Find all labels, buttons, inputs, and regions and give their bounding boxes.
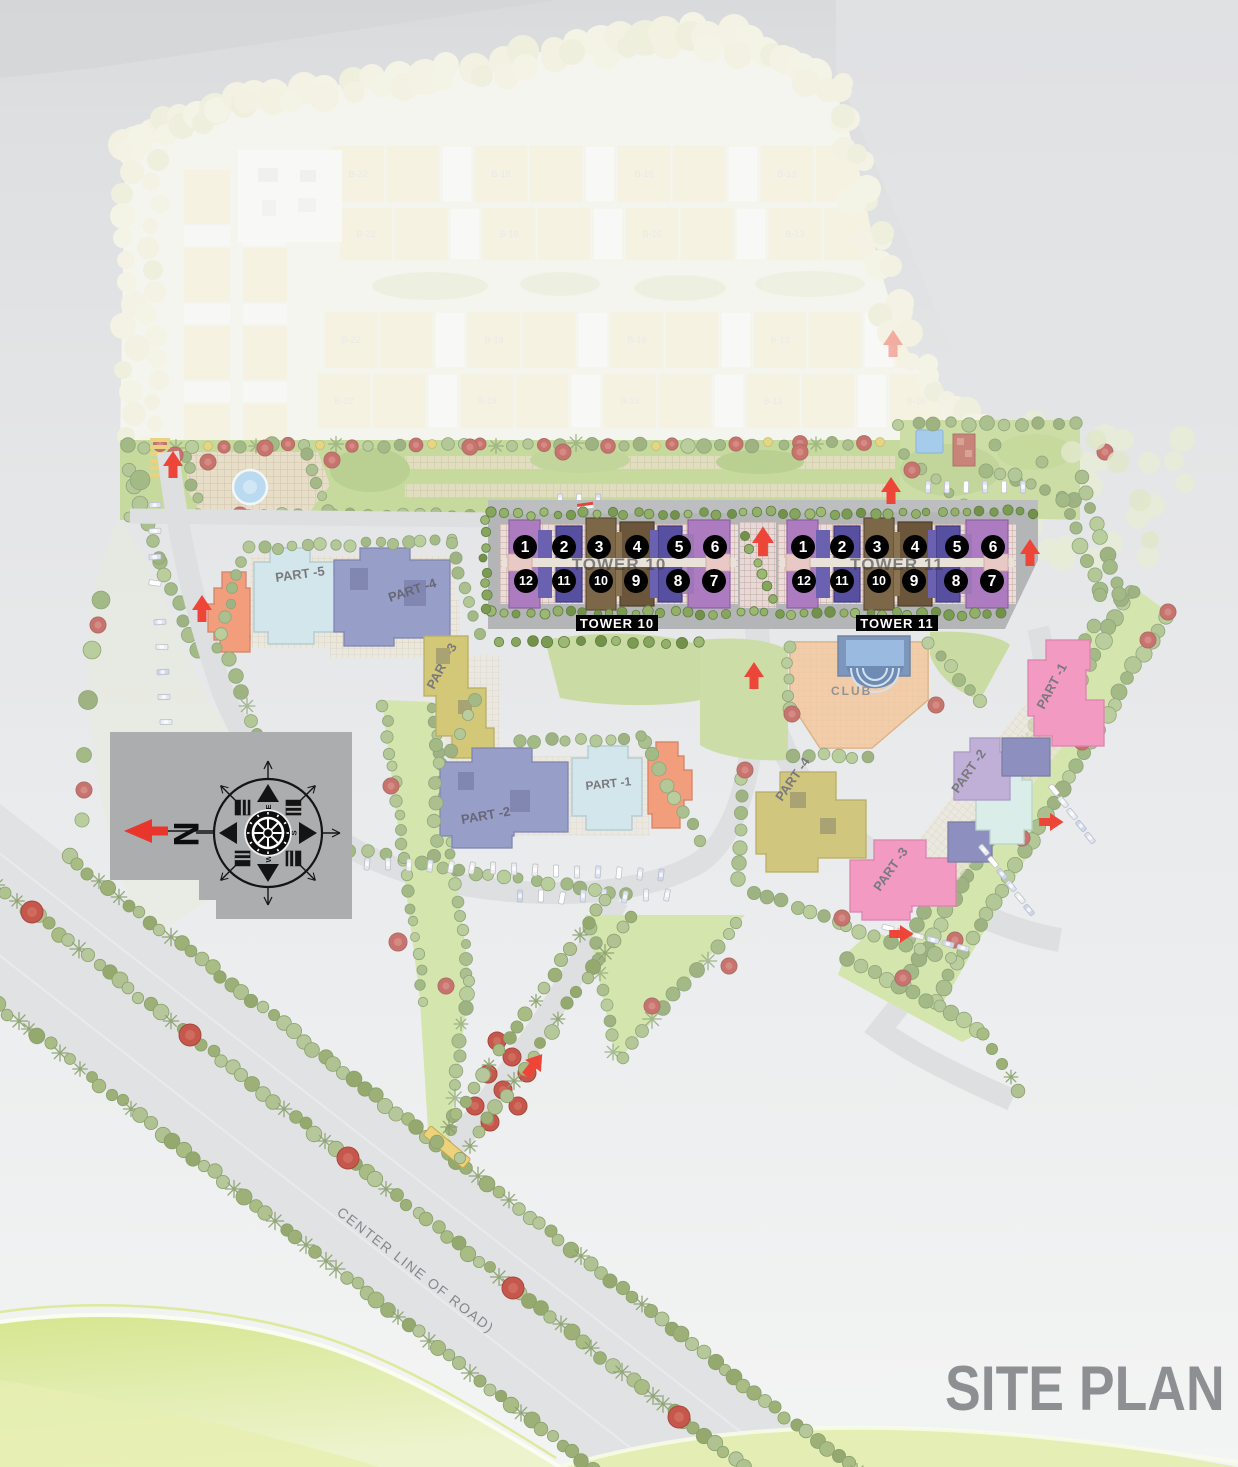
svg-text:1: 1	[521, 539, 530, 556]
svg-text:TOWER 11: TOWER 11	[860, 616, 934, 631]
svg-text:4: 4	[633, 539, 642, 556]
svg-text:9: 9	[632, 573, 641, 590]
svg-text:TOWER 10: TOWER 10	[580, 616, 654, 631]
svg-text:11: 11	[557, 574, 570, 588]
svg-text:TOWER 11: TOWER 11	[850, 555, 944, 574]
svg-text:12: 12	[519, 574, 533, 588]
svg-text:3: 3	[873, 539, 882, 556]
svg-text:5: 5	[675, 539, 684, 556]
svg-text:2: 2	[560, 539, 569, 556]
svg-text:8: 8	[674, 573, 683, 590]
svg-text:SITE PLAN: SITE PLAN	[945, 1354, 1225, 1424]
svg-text:11: 11	[835, 574, 848, 588]
svg-text:5: 5	[953, 539, 962, 556]
svg-text:2: 2	[838, 539, 847, 556]
svg-text:10: 10	[594, 574, 608, 588]
svg-text:4: 4	[911, 539, 920, 556]
svg-text:9: 9	[910, 573, 919, 590]
svg-text:6: 6	[989, 539, 998, 556]
svg-text:N: N	[168, 821, 207, 846]
svg-text:7: 7	[988, 573, 997, 590]
svg-text:E: E	[264, 804, 273, 809]
svg-text:3: 3	[595, 539, 604, 556]
svg-text:12: 12	[797, 574, 811, 588]
svg-text:TOWER 10: TOWER 10	[572, 555, 667, 574]
svg-text:7: 7	[710, 573, 719, 590]
svg-text:8: 8	[952, 573, 961, 590]
svg-text:1: 1	[799, 539, 808, 556]
svg-text:10: 10	[872, 574, 886, 588]
svg-text:6: 6	[711, 539, 720, 556]
